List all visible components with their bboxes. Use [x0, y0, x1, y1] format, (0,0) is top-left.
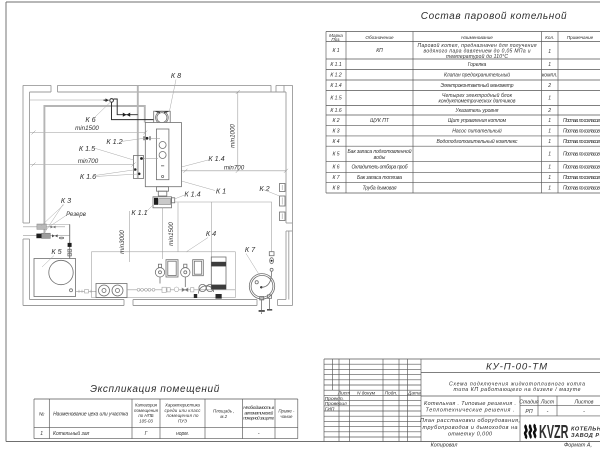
svg-text:-: -	[583, 409, 585, 415]
svg-text:Бак запаса топлива: Бак запаса топлива	[357, 175, 402, 181]
svg-text:по НПБ: по НПБ	[138, 413, 153, 418]
svg-text:Необходимость в: Необходимость в	[243, 405, 275, 410]
svg-text:Лист: Лист	[540, 399, 555, 405]
svg-text:среди или класс: среди или класс	[165, 408, 202, 413]
svg-text:Обозначение: Обозначение	[365, 35, 394, 40]
svg-text:Клапан предохранительный: Клапан предохранительный	[444, 71, 510, 78]
svg-text:кондуктометрических датчиков: кондуктометрических датчиков	[439, 99, 516, 105]
svg-text:1: 1	[548, 96, 551, 102]
svg-text:К 8: К 8	[171, 71, 181, 80]
svg-text:Постав. по согласов: Постав. по согласов	[563, 139, 600, 145]
svg-text:К 1.6: К 1.6	[330, 108, 342, 114]
svg-text:Охладитель отбора проб: Охладитель отбора проб	[352, 165, 408, 171]
svg-text:1: 1	[548, 62, 551, 68]
svg-text:К 3: К 3	[332, 129, 339, 135]
svg-text:Лист: Лист	[337, 391, 350, 397]
svg-text:воды: воды	[374, 155, 386, 161]
svg-text:К 3: К 3	[61, 196, 71, 205]
svg-text:Котельный зал: Котельный зал	[53, 430, 90, 437]
svg-text:КОТЕЛЬНЫЙ: КОТЕЛЬНЫЙ	[571, 425, 600, 433]
svg-text:помещения: помещения	[134, 408, 159, 413]
svg-text:К 1.4: К 1.4	[208, 154, 224, 163]
svg-text:1: 1	[548, 152, 551, 158]
svg-text:Дата: Дата	[407, 391, 421, 397]
svg-text:Водоподготовительный комплекс: Водоподготовительный комплекс	[437, 138, 519, 145]
svg-text:К 6: К 6	[85, 115, 95, 124]
svg-text:К 2: К 2	[332, 118, 339, 124]
svg-text:Поз.: Поз.	[331, 37, 340, 42]
svg-text:Котельная . Типовые решения .: Котельная . Типовые решения .	[424, 401, 516, 407]
svg-text:компл.: компл.	[542, 72, 558, 78]
svg-text:К 1.2: К 1.2	[106, 137, 122, 146]
svg-text:температурой до 110°С: температурой до 110°С	[446, 53, 508, 60]
svg-text:Кол.: Кол.	[545, 35, 554, 40]
svg-text:К 5: К 5	[332, 152, 339, 158]
svg-text:Категория: Категория	[135, 403, 158, 408]
svg-text:помещения по: помещения по	[167, 413, 200, 418]
svg-text:min700: min700	[224, 165, 245, 172]
svg-text:Наименование: Наименование	[461, 35, 493, 40]
svg-text:Электроконтактный манометр: Электроконтактный манометр	[441, 82, 514, 89]
svg-text:чание: чание	[280, 414, 293, 419]
svg-text:Горелка: Горелка	[468, 62, 487, 68]
svg-text:К 5: К 5	[51, 247, 62, 256]
svg-text:min1500: min1500	[75, 125, 99, 132]
svg-text:К 1.4: К 1.4	[330, 83, 342, 89]
svg-text:К 1.6: К 1.6	[80, 172, 96, 181]
svg-text:Приме -: Приме -	[278, 409, 295, 414]
svg-text:Примечание: Примечание	[567, 35, 594, 40]
svg-text:Проект.: Проект.	[325, 396, 344, 402]
svg-text:ЗАВОД РЭП: ЗАВОД РЭП	[571, 433, 600, 439]
svg-text:Постав. по согласов: Постав. по согласов	[563, 165, 600, 171]
svg-text:Постав. по согласов: Постав. по согласов	[563, 118, 600, 124]
svg-text:ПУЭ: ПУЭ	[178, 418, 187, 423]
svg-text:Постав. по согласов: Постав. по согласов	[563, 129, 600, 135]
svg-text:2: 2	[547, 108, 551, 114]
svg-text:1: 1	[548, 185, 551, 191]
svg-text:KVZR: KVZR	[539, 421, 569, 442]
svg-text:Состав паровой котельной: Состав паровой котельной	[421, 11, 567, 22]
svg-text:Резерв: Резерв	[66, 212, 86, 218]
svg-text:-: -	[547, 409, 549, 415]
svg-text:1: 1	[548, 165, 551, 171]
svg-text:min3000: min3000	[119, 230, 126, 254]
svg-text:Копировал: Копировал	[431, 442, 458, 448]
svg-text:К 1.2: К 1.2	[330, 72, 342, 78]
svg-text:Характеристика: Характеристика	[164, 403, 201, 408]
svg-text:Площадь ,: Площадь ,	[213, 409, 235, 414]
svg-text:Подп.: Подп.	[385, 391, 398, 397]
svg-text:Проверил: Проверил	[325, 401, 347, 407]
svg-text:Насос питательный: Насос питательный	[452, 128, 502, 135]
svg-text:норм.: норм.	[176, 431, 189, 437]
svg-text:1: 1	[548, 139, 551, 145]
svg-text:№: №	[39, 412, 45, 418]
svg-text:типа КП работающего на дизеле: типа КП работающего на дизеле / мазуте	[454, 387, 581, 393]
svg-text:К 7: К 7	[332, 175, 339, 181]
svg-text:КУ-П-00-ТМ: КУ-П-00-ТМ	[486, 362, 548, 373]
svg-text:min1000: min1000	[230, 124, 237, 148]
svg-text:Щит управления котлом: Щит управления котлом	[448, 118, 507, 124]
svg-text:ЩУК ПТ: ЩУК ПТ	[370, 118, 390, 124]
svg-text:N докум: N докум	[357, 391, 376, 397]
svg-text:КП: КП	[376, 48, 383, 54]
svg-text:трубопроводов и дымоходов на: трубопроводов и дымоходов на	[423, 425, 518, 431]
svg-text:Стадия: Стадия	[519, 399, 539, 405]
svg-text:РП: РП	[525, 409, 532, 415]
svg-text:Постав. по согласов: Постав. по согласов	[563, 152, 600, 158]
svg-text:min700: min700	[78, 158, 99, 165]
svg-text:1: 1	[548, 129, 551, 135]
svg-text:Наименование цеха или участка: Наименование цеха или участка	[53, 412, 128, 418]
svg-text:Постав. по согласов: Постав. по согласов	[563, 185, 600, 191]
svg-text:Формат А,: Формат А,	[564, 442, 592, 448]
svg-text:К 4: К 4	[206, 229, 216, 238]
svg-text:ГИП: ГИП	[325, 406, 335, 412]
svg-text:К 1.5: К 1.5	[330, 96, 342, 102]
svg-text:Экспликация помещений: Экспликация помещений	[90, 384, 220, 395]
svg-text:отметку 0,000: отметку 0,000	[448, 431, 492, 437]
svg-text:105-03: 105-03	[139, 418, 153, 423]
svg-text:К 1: К 1	[332, 48, 339, 54]
svg-text:пожарной защите: пожарной защите	[243, 416, 275, 421]
svg-text:1: 1	[548, 118, 551, 124]
svg-text:1: 1	[40, 431, 43, 437]
svg-text:К 7: К 7	[245, 245, 256, 254]
svg-text:min1500: min1500	[168, 222, 175, 246]
svg-text:автоматической: автоматической	[244, 410, 274, 415]
svg-text:К 8: К 8	[332, 185, 339, 191]
svg-text:Указатель уровня: Указатель уровня	[456, 108, 499, 114]
svg-text:К 1: К 1	[216, 187, 226, 196]
svg-text:К 4: К 4	[332, 139, 339, 145]
svg-text:Листов: Листов	[574, 399, 594, 405]
svg-text:К 1.1: К 1.1	[330, 62, 342, 68]
svg-text:1: 1	[548, 49, 551, 55]
svg-text:К 1.5: К 1.5	[79, 144, 96, 153]
svg-text:1: 1	[548, 175, 551, 181]
svg-text:2: 2	[547, 83, 551, 89]
svg-text:К 6: К 6	[332, 165, 339, 171]
svg-text:Теплотехнические решения .: Теплотехнические решения .	[426, 407, 515, 413]
svg-text:Постав. по согласов: Постав. по согласов	[563, 175, 600, 181]
svg-text:м.2: м.2	[220, 414, 227, 419]
svg-text:Труба дымовая: Труба дымовая	[363, 185, 397, 191]
svg-text:К 1.1: К 1.1	[131, 208, 147, 217]
svg-text:План расстановки оборудования,: План расстановки оборудования,	[420, 418, 520, 424]
